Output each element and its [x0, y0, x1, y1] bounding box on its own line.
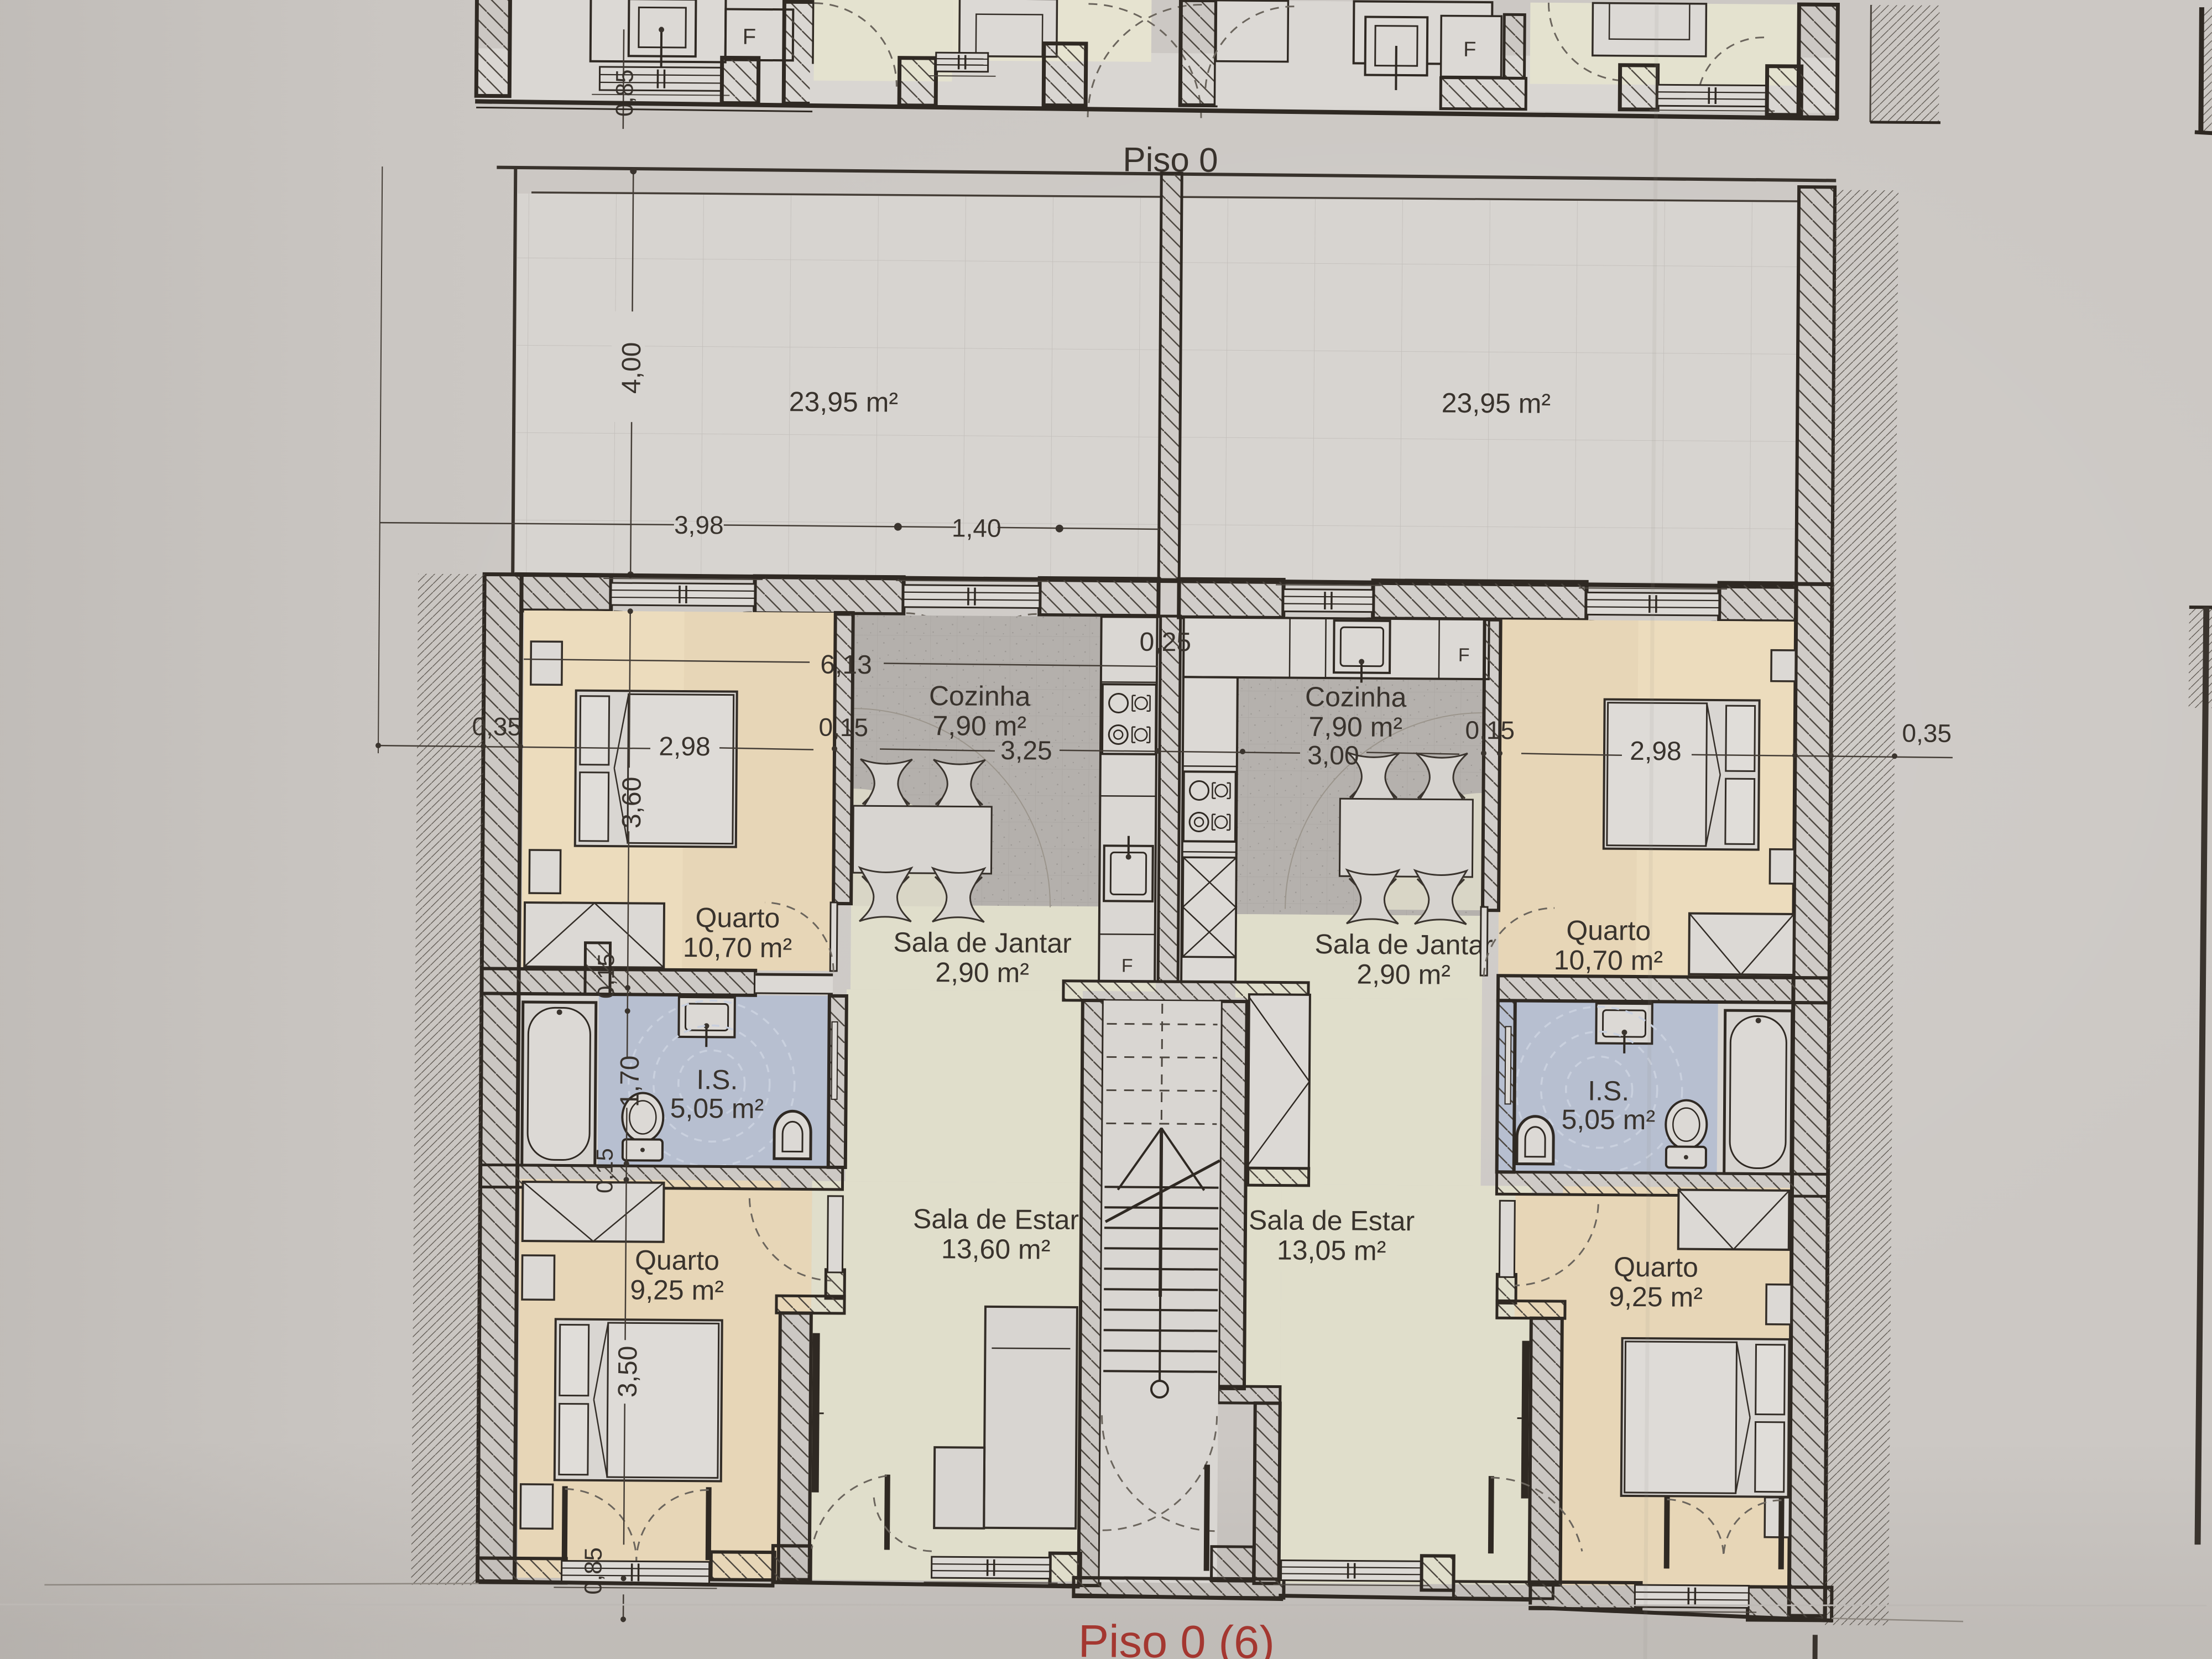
svg-text:10,70 m²: 10,70 m²	[1554, 945, 1663, 976]
svg-text:Quarto: Quarto	[695, 902, 780, 933]
svg-text:3,50: 3,50	[613, 1345, 643, 1397]
svg-text:3,25: 3,25	[1000, 736, 1052, 766]
svg-text:2,90 m²: 2,90 m²	[1357, 958, 1451, 990]
svg-text:Sala de Jantar: Sala de Jantar	[893, 927, 1072, 959]
svg-text:10,70 m²: 10,70 m²	[683, 932, 792, 963]
svg-text:0,15: 0,15	[591, 1148, 618, 1193]
svg-text:Quarto: Quarto	[1566, 915, 1651, 946]
svg-text:13,05 m²: 13,05 m²	[1277, 1234, 1386, 1266]
svg-text:F: F	[1121, 956, 1133, 977]
svg-text:0,15: 0,15	[593, 953, 619, 999]
svg-text:2,98: 2,98	[1630, 737, 1682, 766]
svg-text:2,98: 2,98	[659, 732, 711, 762]
svg-text:3,98: 3,98	[674, 510, 724, 540]
svg-text:2,90 m²: 2,90 m²	[935, 957, 1029, 988]
svg-text:0,15: 0,15	[818, 713, 868, 742]
svg-text:13,60 m²: 13,60 m²	[941, 1233, 1051, 1265]
svg-text:Piso 0 (6): Piso 0 (6)	[1078, 1615, 1275, 1659]
svg-text:F: F	[1458, 645, 1470, 666]
svg-text:0,25: 0,25	[1139, 628, 1191, 658]
svg-text:Cozinha: Cozinha	[1305, 681, 1407, 713]
svg-text:Quarto: Quarto	[635, 1244, 719, 1276]
svg-text:Cozinha: Cozinha	[929, 680, 1031, 712]
svg-text:0,15: 0,15	[1465, 716, 1515, 745]
svg-text:6,13: 6,13	[820, 650, 872, 680]
svg-text:I.S.: I.S.	[1588, 1075, 1629, 1107]
svg-text:1,40: 1,40	[952, 513, 1001, 542]
svg-text:0,35: 0,35	[472, 712, 521, 741]
svg-text:4,00: 4,00	[617, 342, 646, 394]
svg-text:0,35: 0,35	[1902, 718, 1952, 748]
svg-text:5,05 m²: 5,05 m²	[1561, 1104, 1655, 1135]
svg-text:F: F	[1463, 38, 1477, 61]
svg-text:Sala de Jantar: Sala de Jantar	[1314, 928, 1493, 961]
svg-text:I.S.: I.S.	[696, 1064, 738, 1095]
svg-text:7,90 m²: 7,90 m²	[1308, 711, 1402, 743]
svg-text:9,25 m²: 9,25 m²	[630, 1274, 724, 1306]
svg-text:3,00: 3,00	[1307, 741, 1359, 771]
svg-text:23,95 m²: 23,95 m²	[789, 386, 899, 418]
svg-text:3,60: 3,60	[617, 776, 647, 828]
svg-text:0,85: 0,85	[580, 1547, 607, 1595]
svg-text:9,25 m²: 9,25 m²	[1609, 1281, 1703, 1313]
svg-text:1,70: 1,70	[615, 1055, 645, 1107]
svg-text:Sala de Estar: Sala de Estar	[1249, 1204, 1415, 1237]
svg-text:Sala de Estar: Sala de Estar	[913, 1203, 1079, 1235]
svg-text:Quarto: Quarto	[1614, 1251, 1698, 1283]
svg-text:23,95 m²: 23,95 m²	[1442, 388, 1551, 419]
svg-text:5,05 m²: 5,05 m²	[670, 1093, 764, 1124]
svg-text:F: F	[743, 25, 757, 49]
